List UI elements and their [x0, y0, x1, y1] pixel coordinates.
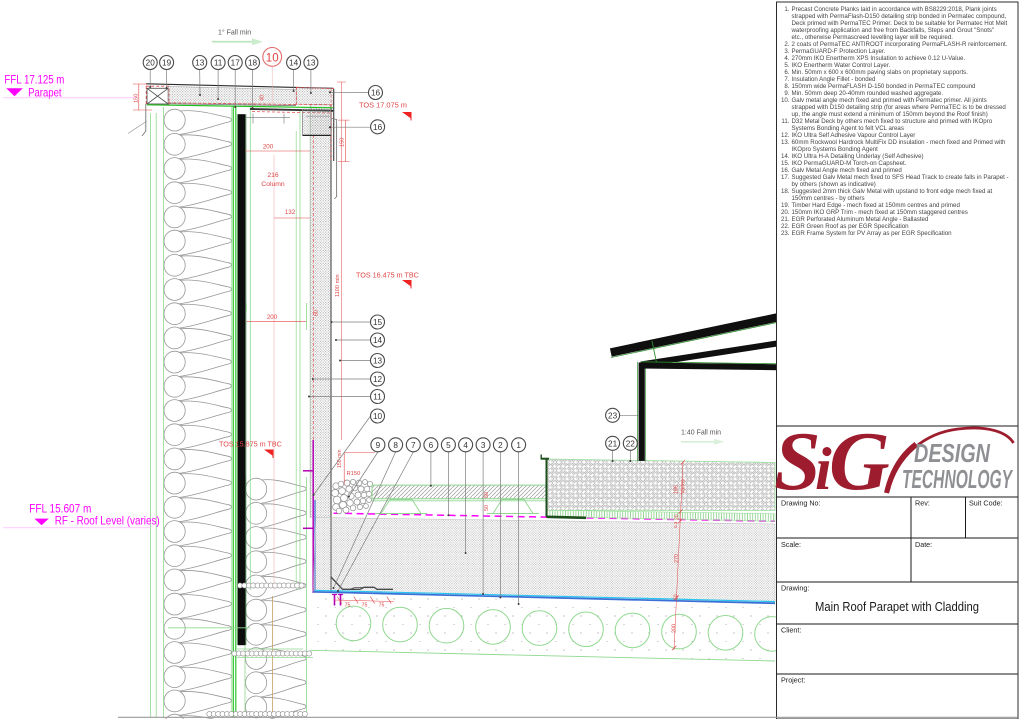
svg-text:15: 15: [373, 318, 383, 327]
svg-text:4: 4: [463, 441, 468, 450]
svg-text:2 coats of PermaTEC ANTIROOT i: 2 coats of PermaTEC ANTIROOT incorporati…: [792, 41, 1008, 48]
svg-text:19: 19: [162, 58, 172, 67]
svg-text:50: 50: [674, 594, 680, 600]
svg-text:150: 150: [133, 94, 139, 103]
svg-text:200: 200: [267, 314, 278, 321]
svg-text:13: 13: [195, 58, 205, 67]
svg-text:21.: 21.: [781, 216, 790, 223]
svg-text:2: 2: [498, 441, 503, 450]
svg-text:22.: 22.: [781, 223, 790, 230]
svg-text:Timber Hard Edge - mech fixed: Timber Hard Edge - mech fixed at 150mm c…: [792, 202, 961, 209]
svg-text:20.: 20.: [781, 209, 790, 216]
svg-text:TOS 16.475 m TBC: TOS 16.475 m TBC: [356, 271, 419, 280]
svg-text:1.: 1.: [784, 6, 789, 13]
svg-text:TOS 17.075 m: TOS 17.075 m: [359, 100, 407, 109]
svg-text:12.: 12.: [781, 132, 790, 139]
svg-text:20: 20: [675, 514, 681, 520]
svg-text:200: 200: [263, 144, 274, 151]
svg-text:Client:: Client:: [781, 626, 801, 635]
svg-text:75: 75: [379, 603, 385, 609]
svg-text:strapped with PermaFlash-D150: strapped with PermaFlash-D150 detailing …: [792, 13, 1007, 20]
svg-text:16.: 16.: [781, 167, 790, 174]
svg-text:IKO Ultra H-A Detailing Underl: IKO Ultra H-A Detailing Underlay (Self A…: [792, 153, 924, 160]
svg-text:R150: R150: [347, 471, 361, 477]
svg-text:IKO Ultra Self Adhesive Vapour: IKO Ultra Self Adhesive Vapour Control L…: [792, 132, 916, 139]
svg-text:5.: 5.: [784, 62, 789, 69]
svg-text:5: 5: [446, 441, 451, 450]
svg-text:10: 10: [373, 412, 383, 421]
svg-text:1100 min: 1100 min: [335, 274, 341, 297]
svg-text:150: 150: [340, 138, 346, 147]
svg-text:16: 16: [373, 123, 383, 132]
svg-text:etc., otherwise Permascreed le: etc., otherwise Permascreed levelling la…: [792, 34, 954, 41]
svg-text:Project:: Project:: [781, 676, 805, 685]
svg-text:Insulation Angle Fillet - bond: Insulation Angle Fillet - bonded: [792, 76, 877, 83]
svg-text:IKOpro Systems Bonding Agent: IKOpro Systems Bonding Agent: [792, 146, 879, 153]
svg-text:4.: 4.: [784, 55, 789, 62]
svg-text:132: 132: [285, 209, 296, 216]
svg-text:IKO Enertherm Water Control La: IKO Enertherm Water Control Layer.: [792, 62, 891, 69]
svg-text:Suit Code:: Suit Code:: [969, 499, 1003, 508]
svg-text:60: 60: [314, 310, 320, 316]
svg-text:75: 75: [362, 603, 368, 609]
svg-text:S: S: [774, 415, 821, 508]
svg-text:Main Roof Parapet with Claddi: Main Roof Parapet with Cladding: [815, 599, 979, 614]
svg-text:PermaGUARD-F Protection Layer.: PermaGUARD-F Protection Layer.: [792, 48, 886, 55]
svg-text:Systems Bonding Agent to felt: Systems Bonding Agent to felt VCL areas: [792, 125, 904, 132]
svg-text:Date:: Date:: [915, 540, 932, 549]
svg-text:Column: Column: [261, 181, 285, 188]
svg-text:strapped with D150 detailing s: strapped with D150 detailing strip (for …: [792, 104, 1007, 111]
svg-text:15.: 15.: [781, 160, 790, 167]
svg-text:14: 14: [289, 58, 299, 67]
svg-text:10.: 10.: [781, 97, 790, 104]
svg-text:23: 23: [608, 411, 618, 420]
svg-text:7.: 7.: [784, 76, 789, 83]
svg-text:Galv Metal Angle mech fixed an: Galv Metal Angle mech fixed and primed: [792, 167, 903, 174]
svg-text:13: 13: [373, 356, 383, 365]
svg-text:1° Fall min: 1° Fall min: [218, 29, 251, 37]
svg-text:14: 14: [373, 336, 383, 345]
svg-text:150mm IKO GRP Trim - mech fixe: 150mm IKO GRP Trim - mech fixed at 150mm…: [792, 209, 968, 216]
svg-text:Min. 50mm deep 20-40mm rounded: Min. 50mm deep 20-40mm rounded washed ag…: [792, 90, 944, 97]
svg-text:18: 18: [248, 58, 258, 67]
svg-text:Suggested 2mm thick Galv Metal: Suggested 2mm thick Galv Metal with upst…: [792, 188, 993, 195]
svg-text:19.: 19.: [781, 202, 790, 209]
svg-text:10: 10: [266, 52, 279, 64]
svg-text:up, the angle must extend a mi: up, the angle must extend a minimum of 1…: [792, 111, 988, 118]
svg-text:20: 20: [146, 58, 156, 67]
svg-text:EGR Perforated Aluminum Metal: EGR Perforated Aluminum Metal Angle - Ba…: [792, 216, 929, 223]
svg-text:18.: 18.: [781, 188, 790, 195]
svg-text:23.: 23.: [781, 230, 790, 237]
svg-text:9.: 9.: [784, 90, 789, 97]
svg-text:1: 1: [516, 441, 521, 450]
svg-text:Galv metal angle mech fixed an: Galv metal angle mech fixed and primed w…: [792, 97, 987, 104]
svg-text:waterproofing application and: waterproofing application and free from …: [791, 27, 995, 34]
svg-text:6: 6: [429, 441, 434, 450]
svg-text:Deck primed with PermaTEC Prim: Deck primed with PermaTEC Primer. Deck t…: [792, 20, 1008, 27]
svg-text:12: 12: [373, 375, 383, 384]
svg-text:Suggested Galv Metal mech fixe: Suggested Galv Metal mech fixed to SFS H…: [792, 174, 1009, 181]
svg-text:186: 186: [674, 485, 680, 494]
svg-text:3.: 3.: [784, 48, 789, 55]
svg-text:Min. 50mm x 600 x 600mm paving: Min. 50mm x 600 x 600mm paving slabs on …: [792, 69, 969, 76]
svg-text:Drawing No:: Drawing No:: [781, 499, 821, 508]
svg-text:13: 13: [306, 58, 316, 67]
svg-text:EGR Frame System for PV Array: EGR Frame System for PV Array as per EGR…: [792, 230, 953, 237]
svg-text:7: 7: [411, 441, 416, 450]
svg-text:Varies: Varies: [681, 479, 687, 494]
svg-text:200: 200: [672, 624, 678, 633]
svg-text:EGR Green Roof as per EGR Spec: EGR Green Roof as per EGR Specification: [792, 223, 910, 230]
svg-text:75: 75: [345, 603, 351, 609]
svg-text:270: 270: [674, 554, 680, 563]
svg-text:14.: 14.: [781, 153, 790, 160]
svg-text:8: 8: [393, 441, 398, 450]
svg-text:G: G: [829, 415, 890, 508]
svg-text:270mm IKO Enertherm XPS Insula: 270mm IKO Enertherm XPS Insulation to ac…: [792, 55, 966, 62]
svg-text:60mm Rockwool Hardrock MultiFi: 60mm Rockwool Hardrock MultiFix DD insul…: [792, 139, 1007, 146]
svg-text:22: 22: [626, 439, 636, 448]
svg-text:50: 50: [484, 492, 490, 498]
svg-text:TOS 15.875 m TBC: TOS 15.875 m TBC: [219, 440, 282, 449]
svg-text:3: 3: [481, 441, 486, 450]
svg-text:40: 40: [260, 95, 266, 101]
svg-text:Rev:: Rev:: [915, 499, 930, 508]
svg-text:150mm centres - by others: 150mm centres - by others: [792, 195, 865, 202]
svg-text:Parapet: Parapet: [28, 85, 62, 99]
svg-text:1:40 Fall min: 1:40 Fall min: [681, 430, 721, 437]
svg-text:50: 50: [484, 505, 490, 511]
svg-text:150mm wide PermaFLASH D-150 bo: 150mm wide PermaFLASH D-150 bonded in Pe…: [792, 83, 977, 90]
svg-text:Precast Concrete Planks laid i: Precast Concrete Planks laid in accordan…: [792, 6, 997, 13]
svg-text:11: 11: [214, 58, 223, 67]
svg-text:by others (shown as indicative: by others (shown as indicative): [792, 181, 876, 188]
svg-text:17: 17: [231, 58, 241, 67]
svg-text:9: 9: [376, 441, 381, 450]
svg-text:2.: 2.: [784, 41, 789, 48]
svg-text:D32 Metal Deck by others mech: D32 Metal Deck by others mech fixed to s…: [792, 118, 993, 125]
svg-text:11: 11: [373, 392, 382, 401]
svg-text:TECHNOLOGY: TECHNOLOGY: [902, 464, 1014, 494]
svg-text:16: 16: [371, 88, 381, 97]
svg-text:17.: 17.: [781, 174, 790, 181]
svg-text:8.: 8.: [784, 83, 789, 90]
svg-text:11.: 11.: [781, 118, 789, 125]
svg-text:0.3: 0.3: [673, 521, 678, 528]
svg-text:IKO PermaGUARD-M Torch-on Caps: IKO PermaGUARD-M Torch-on Capsheet.: [792, 160, 907, 167]
svg-text:RF - Roof Level (varies): RF - Roof Level (varies): [55, 514, 160, 528]
svg-text:Drawing:: Drawing:: [781, 584, 809, 593]
svg-text:6.: 6.: [784, 69, 789, 76]
svg-text:Scale:: Scale:: [781, 540, 801, 549]
svg-text:216: 216: [267, 172, 279, 179]
svg-text:13.: 13.: [781, 139, 790, 146]
svg-text:21: 21: [608, 439, 618, 448]
